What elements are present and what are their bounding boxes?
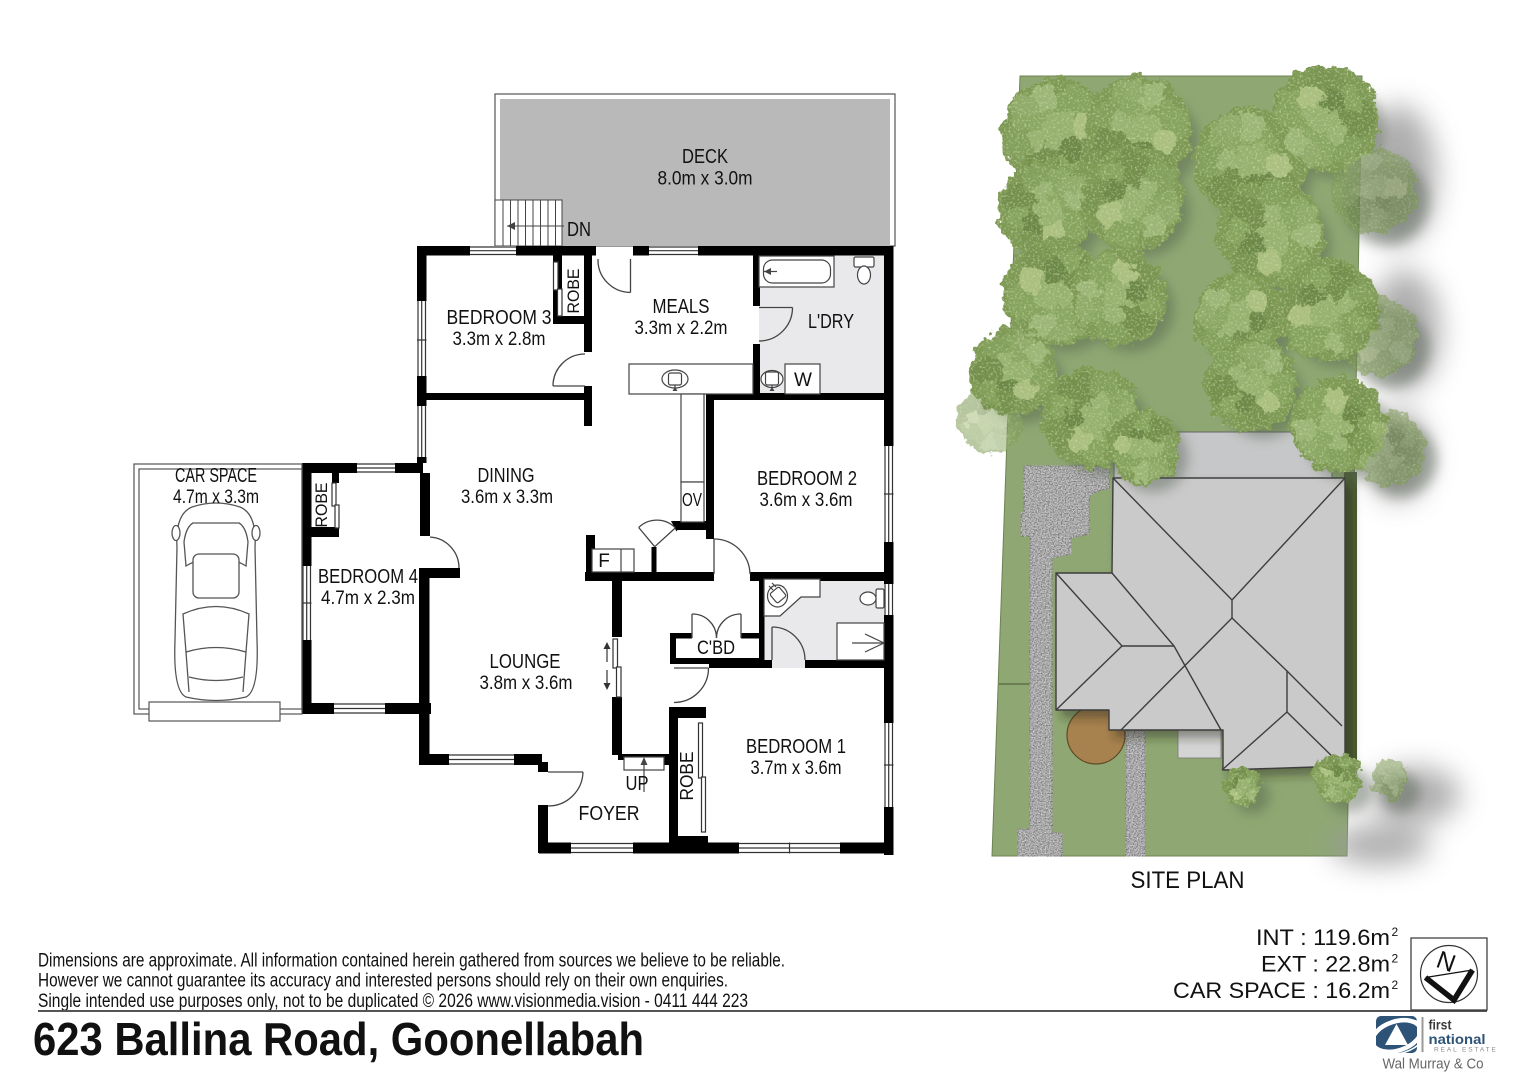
svg-text:BEDROOM 3: BEDROOM 3 xyxy=(447,307,552,329)
svg-text:national: national xyxy=(1429,1031,1486,1047)
svg-text:DECK: DECK xyxy=(682,146,729,168)
svg-text:UP: UP xyxy=(626,773,649,795)
svg-text:Dimensions are approximate. Al: Dimensions are approximate. All informat… xyxy=(38,951,785,972)
svg-text:Single intended use purposes o: Single intended use purposes only, not t… xyxy=(38,991,748,1012)
svg-text:3.6m x 3.3m: 3.6m x 3.3m xyxy=(461,487,553,508)
svg-text:3.3m x 2.2m: 3.3m x 2.2m xyxy=(635,318,728,339)
svg-text:INT : 119.6m: INT : 119.6m xyxy=(1256,925,1390,950)
svg-text:623 Ballina Road, Goonellabah: 623 Ballina Road, Goonellabah xyxy=(33,1013,644,1065)
svg-text:SITE PLAN: SITE PLAN xyxy=(1131,867,1245,894)
svg-text:OV: OV xyxy=(682,490,702,510)
svg-text:FOYER: FOYER xyxy=(579,803,640,825)
svg-text:LOUNGE: LOUNGE xyxy=(490,651,561,673)
svg-text:BEDROOM 4: BEDROOM 4 xyxy=(318,566,418,588)
svg-text:F: F xyxy=(598,551,610,572)
svg-text:CAR SPACE : 16.2m: CAR SPACE : 16.2m xyxy=(1173,978,1390,1003)
svg-text:ROBE: ROBE xyxy=(564,269,583,314)
svg-text:2: 2 xyxy=(1392,978,1399,992)
svg-text:4.7m x 2.3m: 4.7m x 2.3m xyxy=(321,588,415,609)
svg-text:2: 2 xyxy=(1392,925,1399,939)
svg-text:2: 2 xyxy=(1392,952,1399,966)
svg-text:DINING: DINING xyxy=(478,465,535,487)
svg-text:3.7m x 3.6m: 3.7m x 3.6m xyxy=(751,758,842,779)
svg-text:W: W xyxy=(794,370,812,391)
svg-text:L'DRY: L'DRY xyxy=(808,311,854,333)
svg-text:CAR SPACE: CAR SPACE xyxy=(175,465,257,487)
svg-text:3.3m x 2.8m: 3.3m x 2.8m xyxy=(453,329,546,350)
svg-text:BEDROOM 1: BEDROOM 1 xyxy=(746,736,846,758)
svg-text:BEDROOM 2: BEDROOM 2 xyxy=(757,468,857,490)
svg-text:4.7m x 3.3m: 4.7m x 3.3m xyxy=(173,487,259,508)
svg-text:3.6m x 3.6m: 3.6m x 3.6m xyxy=(760,490,853,511)
svg-text:3.8m x 3.6m: 3.8m x 3.6m xyxy=(480,673,573,694)
svg-text:8.0m x 3.0m: 8.0m x 3.0m xyxy=(658,169,753,190)
svg-text:MEALS: MEALS xyxy=(653,296,710,318)
svg-text:ROBE: ROBE xyxy=(312,483,331,528)
svg-text:REAL ESTATE: REAL ESTATE xyxy=(1434,1047,1498,1054)
svg-text:ROBE: ROBE xyxy=(677,752,697,801)
svg-text:DN: DN xyxy=(567,219,591,241)
svg-text:However we cannot guarantee it: However we cannot guarantee its accuracy… xyxy=(38,971,728,992)
svg-text:C'BD: C'BD xyxy=(697,638,735,659)
svg-text:EXT : 22.8m: EXT : 22.8m xyxy=(1261,952,1390,977)
svg-text:Wal Murray & Co: Wal Murray & Co xyxy=(1383,1056,1484,1073)
